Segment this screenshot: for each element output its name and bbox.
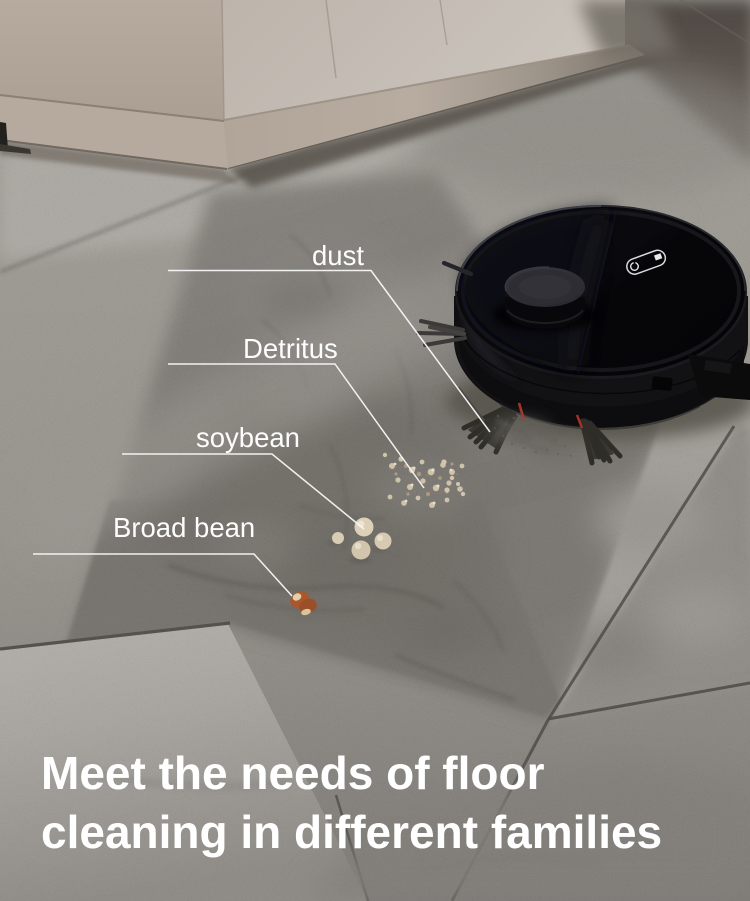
svg-text:soybean: soybean bbox=[196, 422, 300, 453]
svg-text:dust: dust bbox=[312, 240, 364, 271]
svg-text:Meet the needs of floor: Meet the needs of floor bbox=[41, 747, 545, 799]
svg-text:Broad bean: Broad bean bbox=[113, 512, 255, 543]
svg-text:Detritus: Detritus bbox=[243, 333, 338, 364]
svg-text:cleaning in different families: cleaning in different families bbox=[41, 806, 662, 858]
